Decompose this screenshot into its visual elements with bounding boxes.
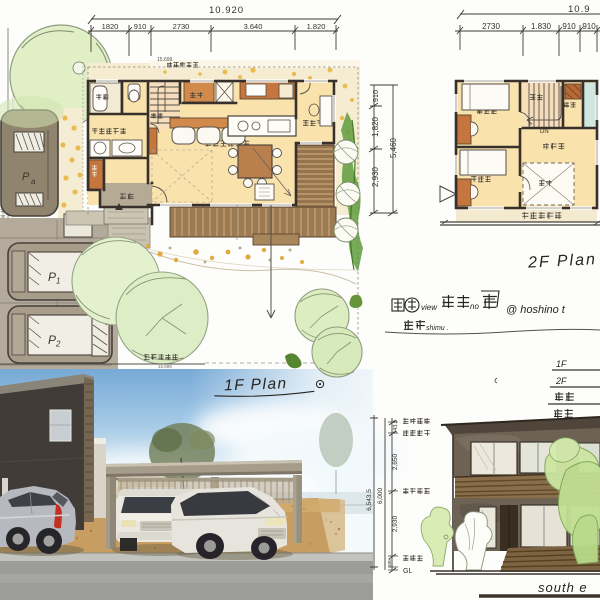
- svg-text:shimu .: shimu .: [426, 325, 449, 332]
- svg-text:2,930: 2,930: [371, 166, 380, 187]
- svg-text:543.5: 543.5: [393, 420, 399, 434]
- svg-text:910: 910: [562, 22, 576, 31]
- svg-text:3.640: 3.640: [244, 22, 263, 31]
- svg-text:15.699: 15.699: [158, 364, 172, 369]
- svg-text:1,820: 1,820: [371, 116, 380, 137]
- svg-text:5,460: 5,460: [389, 137, 398, 158]
- svg-text:1F Plan: 1F Plan: [224, 375, 288, 394]
- svg-text:1.820: 1.820: [307, 22, 326, 31]
- svg-text:2,650: 2,650: [392, 453, 399, 470]
- svg-text:P: P: [22, 171, 30, 183]
- svg-text:1.830: 1.830: [531, 22, 552, 31]
- svg-text:400: 400: [387, 559, 392, 567]
- svg-text:2F: 2F: [555, 376, 567, 386]
- svg-text:2,930: 2,930: [392, 515, 399, 532]
- svg-text:GL: GL: [403, 568, 412, 575]
- svg-text:no: no: [470, 302, 479, 311]
- svg-text:2730: 2730: [482, 22, 500, 31]
- svg-text:910: 910: [134, 22, 147, 31]
- svg-text:6,543.5: 6,543.5: [366, 489, 373, 511]
- svg-text:view: view: [421, 303, 438, 312]
- svg-text:910: 910: [582, 22, 596, 31]
- svg-text:10.9: 10.9: [568, 4, 591, 15]
- svg-text:2730: 2730: [173, 22, 190, 31]
- svg-text:south e: south e: [538, 580, 588, 595]
- svg-text:6,000: 6,000: [377, 487, 384, 504]
- svg-text:10.920: 10.920: [209, 5, 244, 16]
- svg-text:910: 910: [371, 90, 380, 103]
- svg-text:1820: 1820: [102, 22, 119, 31]
- svg-text:a: a: [31, 177, 36, 186]
- svg-text:@ hoshino t: @ hoshino t: [506, 304, 566, 316]
- svg-text:1F: 1F: [556, 359, 567, 369]
- svg-text:DN: DN: [540, 129, 549, 135]
